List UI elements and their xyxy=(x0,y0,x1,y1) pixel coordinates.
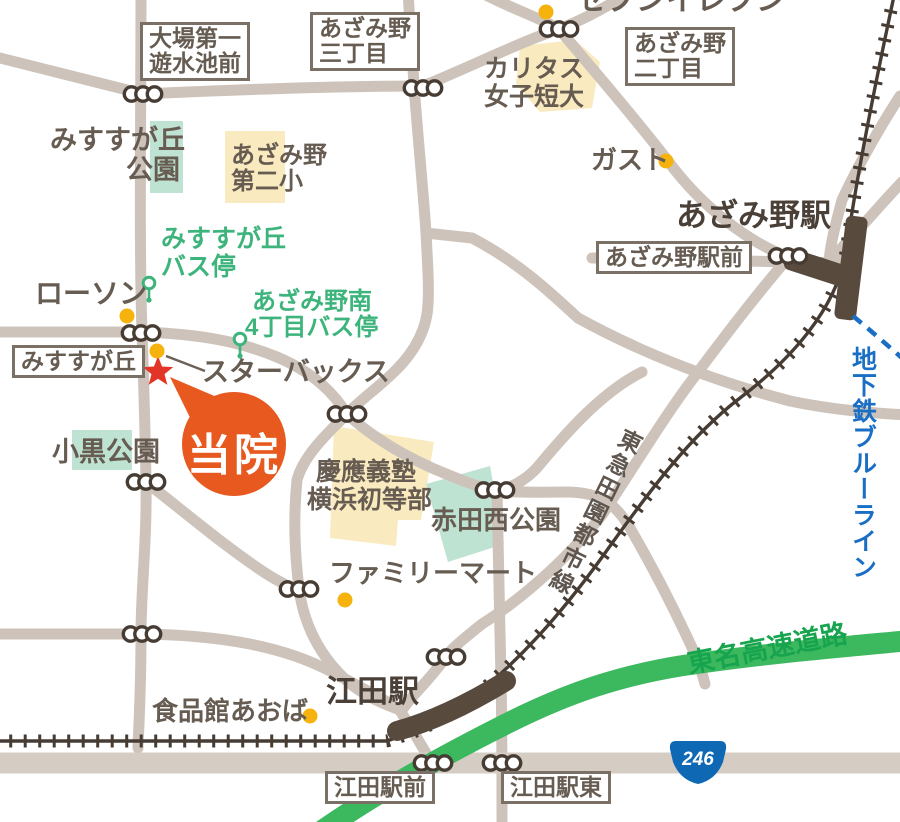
access-map: セブンイレブン 大場第一 遊水池前 あざみ野 三丁目 あざみ野 二丁目 あざみ野… xyxy=(0,0,900,822)
poi-label-starbucks: スターバックス xyxy=(202,358,390,388)
school-label-keio-line2: 横浜初等部 xyxy=(307,487,432,515)
school-label-dai2-line1: あざみ野 xyxy=(231,143,327,169)
intersection-label-azamino-sta-front: あざみ野駅前 xyxy=(596,241,752,274)
intersection-label-oba-line1: 大場第一 xyxy=(149,26,241,51)
route-246-number: 246 xyxy=(672,749,724,771)
map-canvas xyxy=(0,0,900,822)
school-label-keio-line1: 慶應義塾 xyxy=(307,459,432,487)
park-label-misusuga: みすすが丘 公園 xyxy=(50,126,180,185)
poi-label-seveneleven: セブンイレブン xyxy=(576,0,786,17)
intersection-label-azamino2-line1: あざみ野 xyxy=(634,31,726,56)
starbucks-dot xyxy=(150,344,165,359)
subway-label-blueline: 地下鉄ブルーライン xyxy=(848,346,876,580)
road-mid-vertical xyxy=(295,0,429,710)
poi-label-familymart: ファミリーマート xyxy=(329,559,537,588)
traffic-light-icon xyxy=(414,756,451,770)
park-label-misusuga-line2: 公園 xyxy=(50,156,180,186)
school-label-dai2: あざみ野 第二小 xyxy=(231,143,327,196)
school-label-dai2-line2: 第二小 xyxy=(231,169,327,195)
traffic-light-icon xyxy=(483,756,520,770)
intersection-label-azamino2-line2: 二丁目 xyxy=(634,56,726,81)
traffic-light-icon xyxy=(127,475,164,489)
bus-stop-label-minami-line2: 4丁目バス停 xyxy=(245,315,378,341)
station-label-azamino: あざみ野駅 xyxy=(676,199,831,233)
traffic-light-icon xyxy=(769,249,806,263)
poi-label-lawson: ローソン xyxy=(35,279,147,310)
intersection-label-azamino3-line2: 三丁目 xyxy=(319,41,411,66)
bus-stop-label-misusuga: みすすが丘 バス停 xyxy=(161,226,286,281)
traffic-light-icon xyxy=(280,582,317,596)
poi-label-gust: ガスト xyxy=(591,146,669,175)
bus-stop-label-misusuga-line2: バス停 xyxy=(161,254,286,282)
intersection-label-eda-front: 江田駅前 xyxy=(325,771,435,804)
poi-label-shokuhinkan: 食品館あおば xyxy=(152,697,308,726)
intersection-label-azamino3-line1: あざみ野 xyxy=(319,16,411,41)
intersection-label-azamino3: あざみ野 三丁目 xyxy=(310,12,420,71)
intersection-label-oba: 大場第一 遊水池前 xyxy=(140,22,250,81)
seveneleven-dot xyxy=(539,5,554,20)
traffic-light-icon xyxy=(476,483,513,497)
station-label-eda: 江田駅 xyxy=(326,675,419,709)
park-label-oguro: 小黒公園 xyxy=(52,438,160,468)
traffic-light-icon xyxy=(123,627,160,641)
traffic-light-icon xyxy=(404,81,441,95)
traffic-light-icon xyxy=(328,407,365,421)
school-label-caritas: カリタス 女子短大 xyxy=(484,56,584,111)
lawson-dot xyxy=(120,309,135,324)
familymart-dot xyxy=(338,593,353,608)
road-network xyxy=(0,0,900,822)
starbucks-leader-line xyxy=(166,356,205,371)
intersection-label-misusuga: みすすが丘 xyxy=(12,345,145,378)
bus-stop-label-minami: あざみ野南 4丁目バス停 xyxy=(245,289,378,342)
bus-stop-label-minami-line1: あざみ野南 xyxy=(245,289,378,315)
park-label-akada: 赤田西公園 xyxy=(431,506,561,535)
intersection-label-azamino2: あざみ野 二丁目 xyxy=(625,27,735,86)
school-label-caritas-line1: カリタス xyxy=(484,56,584,84)
school-label-keio: 慶應義塾 横浜初等部 xyxy=(307,459,432,514)
traffic-light-icon xyxy=(427,650,464,664)
intersection-label-oba-line2: 遊水池前 xyxy=(149,51,241,76)
park-label-misusuga-line1: みすすが丘 xyxy=(50,126,180,156)
traffic-light-icon xyxy=(124,87,161,101)
traffic-light-icon xyxy=(540,22,577,36)
intersection-label-eda-east: 江田駅東 xyxy=(501,771,611,804)
road-oguro-diagonal xyxy=(146,482,298,591)
clinic-balloon-label: 当院 xyxy=(182,419,286,483)
school-label-caritas-line2: 女子短大 xyxy=(484,84,584,112)
traffic-light-icon xyxy=(122,326,159,340)
bus-stop-label-misusuga-line1: みすすが丘 xyxy=(161,226,286,254)
